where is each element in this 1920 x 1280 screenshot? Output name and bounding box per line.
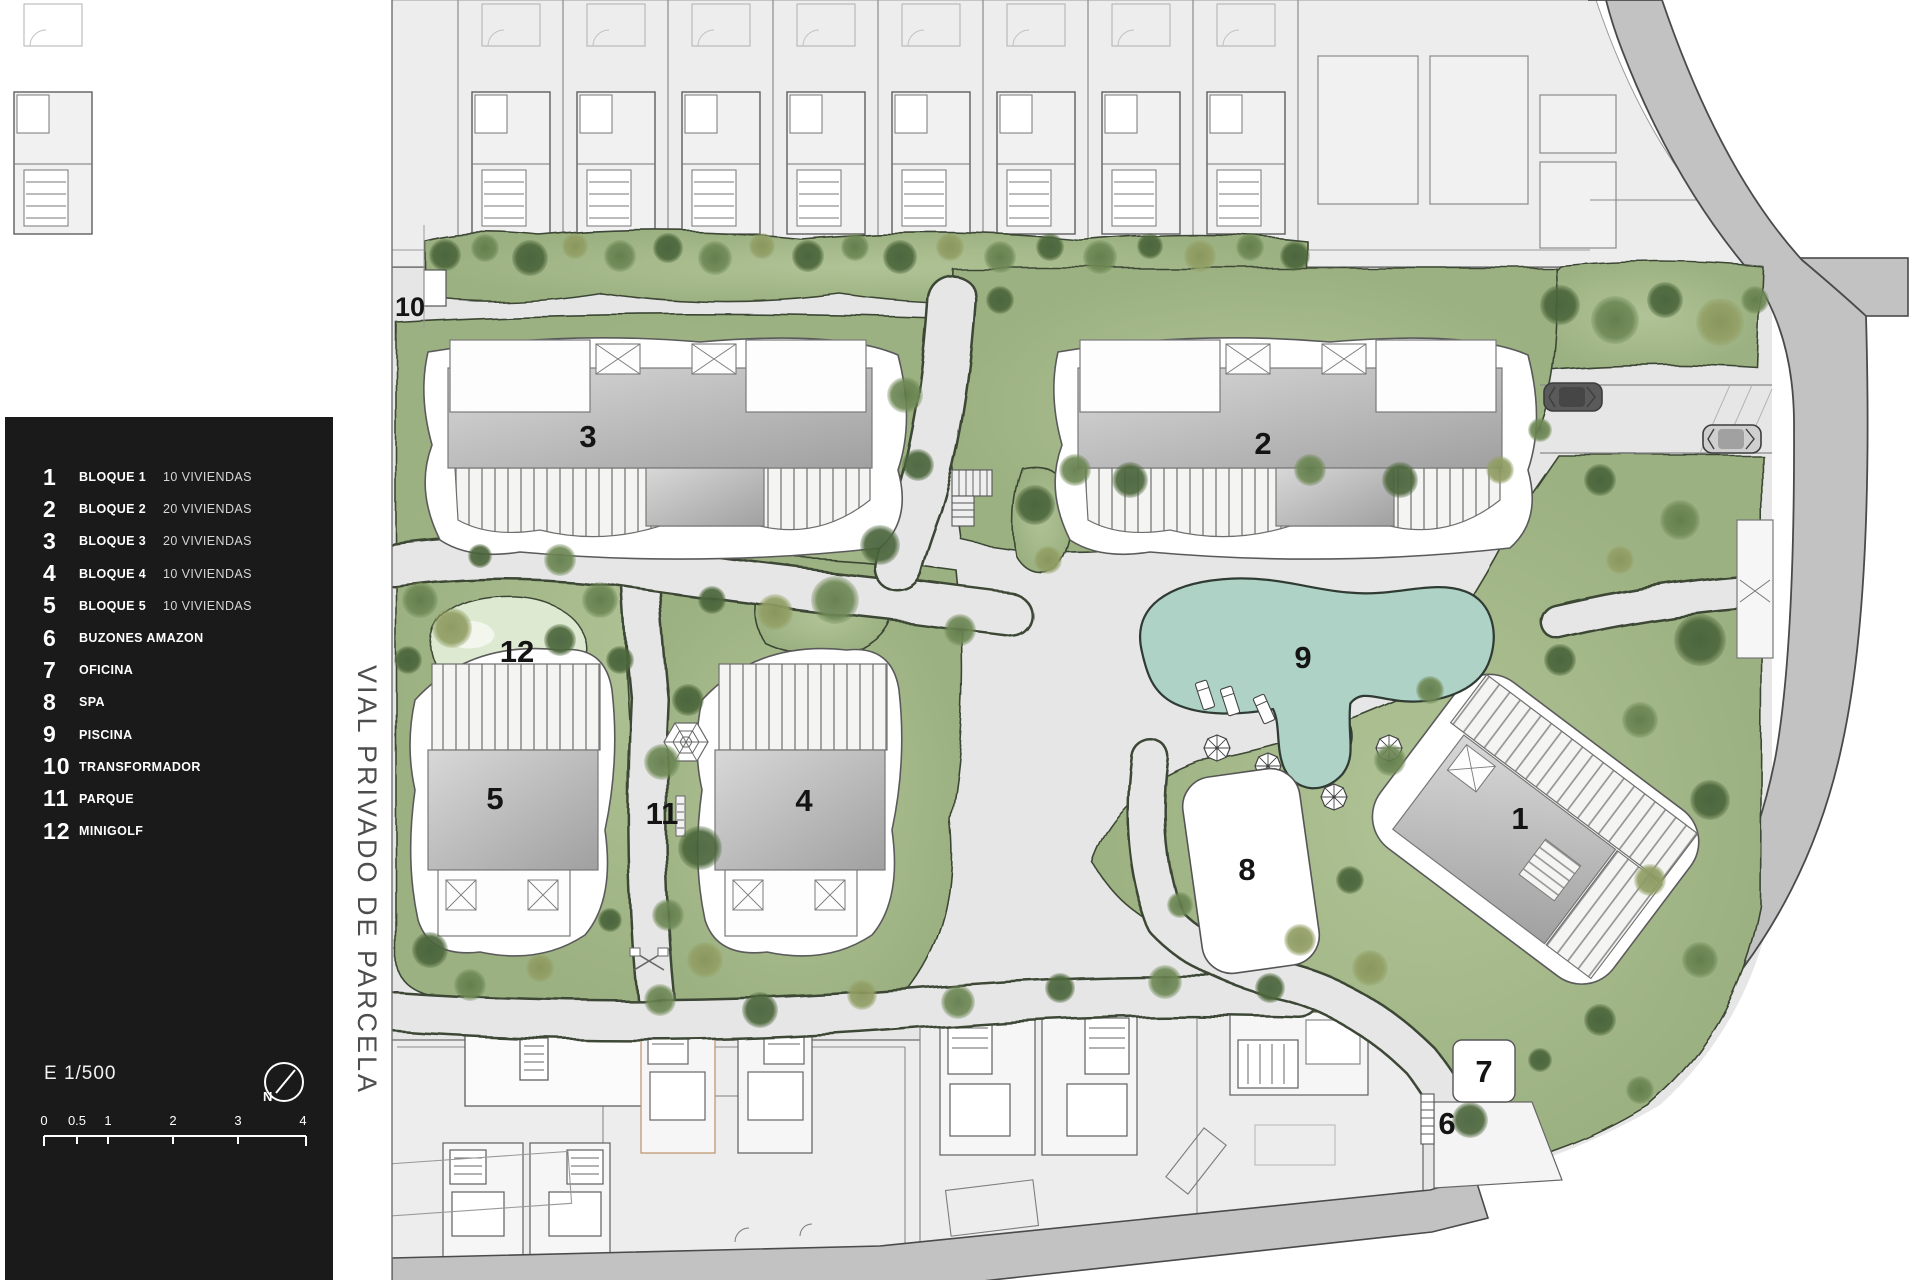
label-buzones: 6 xyxy=(1438,1106,1455,1141)
label-block-5: 5 xyxy=(486,781,503,816)
scale-tick: 4 xyxy=(299,1113,306,1128)
scale-bar xyxy=(44,1136,306,1146)
legend-graphics: N 0 0.5 1 2 3 4 xyxy=(5,417,333,1280)
parked-car xyxy=(1544,383,1602,411)
label-block-4: 4 xyxy=(795,783,813,818)
scale-tick: 0 xyxy=(40,1113,47,1128)
label-block-3: 3 xyxy=(579,419,596,454)
north-letter: N xyxy=(263,1089,272,1104)
scale-tick: 0.5 xyxy=(68,1113,86,1128)
transformer-box xyxy=(424,270,446,306)
block-2-building xyxy=(1054,338,1537,559)
label-block-2: 2 xyxy=(1254,426,1271,461)
pedestrian-entry xyxy=(1737,520,1773,658)
label-piscina: 9 xyxy=(1294,640,1311,675)
label-spa: 8 xyxy=(1238,852,1255,887)
block-5-building xyxy=(410,649,615,956)
block-3-building xyxy=(424,338,907,559)
label-minigolf: 12 xyxy=(500,634,534,669)
amazon-mailboxes xyxy=(1421,1094,1434,1144)
label-parque: 11 xyxy=(646,796,679,831)
scale-tick: 1 xyxy=(104,1113,111,1128)
label-oficina: 7 xyxy=(1475,1054,1492,1089)
street-name: VIAL PRIVADO DE PARCELA xyxy=(352,665,382,1095)
label-block-1: 1 xyxy=(1511,801,1528,836)
parked-car xyxy=(1703,425,1761,453)
label-transformador: 10 xyxy=(395,292,425,322)
scale-tick: 2 xyxy=(169,1113,176,1128)
legend-panel: 1BLOQUE 110 VIVIENDAS 2BLOQUE 220 VIVIEN… xyxy=(5,417,333,1280)
scale-tick: 3 xyxy=(234,1113,241,1128)
site-plan-page: VIAL PRIVADO DE PARCELA 3 2 12 5 11 4 9 … xyxy=(0,0,1920,1280)
north-arrow: N xyxy=(263,1063,303,1104)
scale-bar-labels: 0 0.5 1 2 3 4 xyxy=(40,1113,306,1128)
